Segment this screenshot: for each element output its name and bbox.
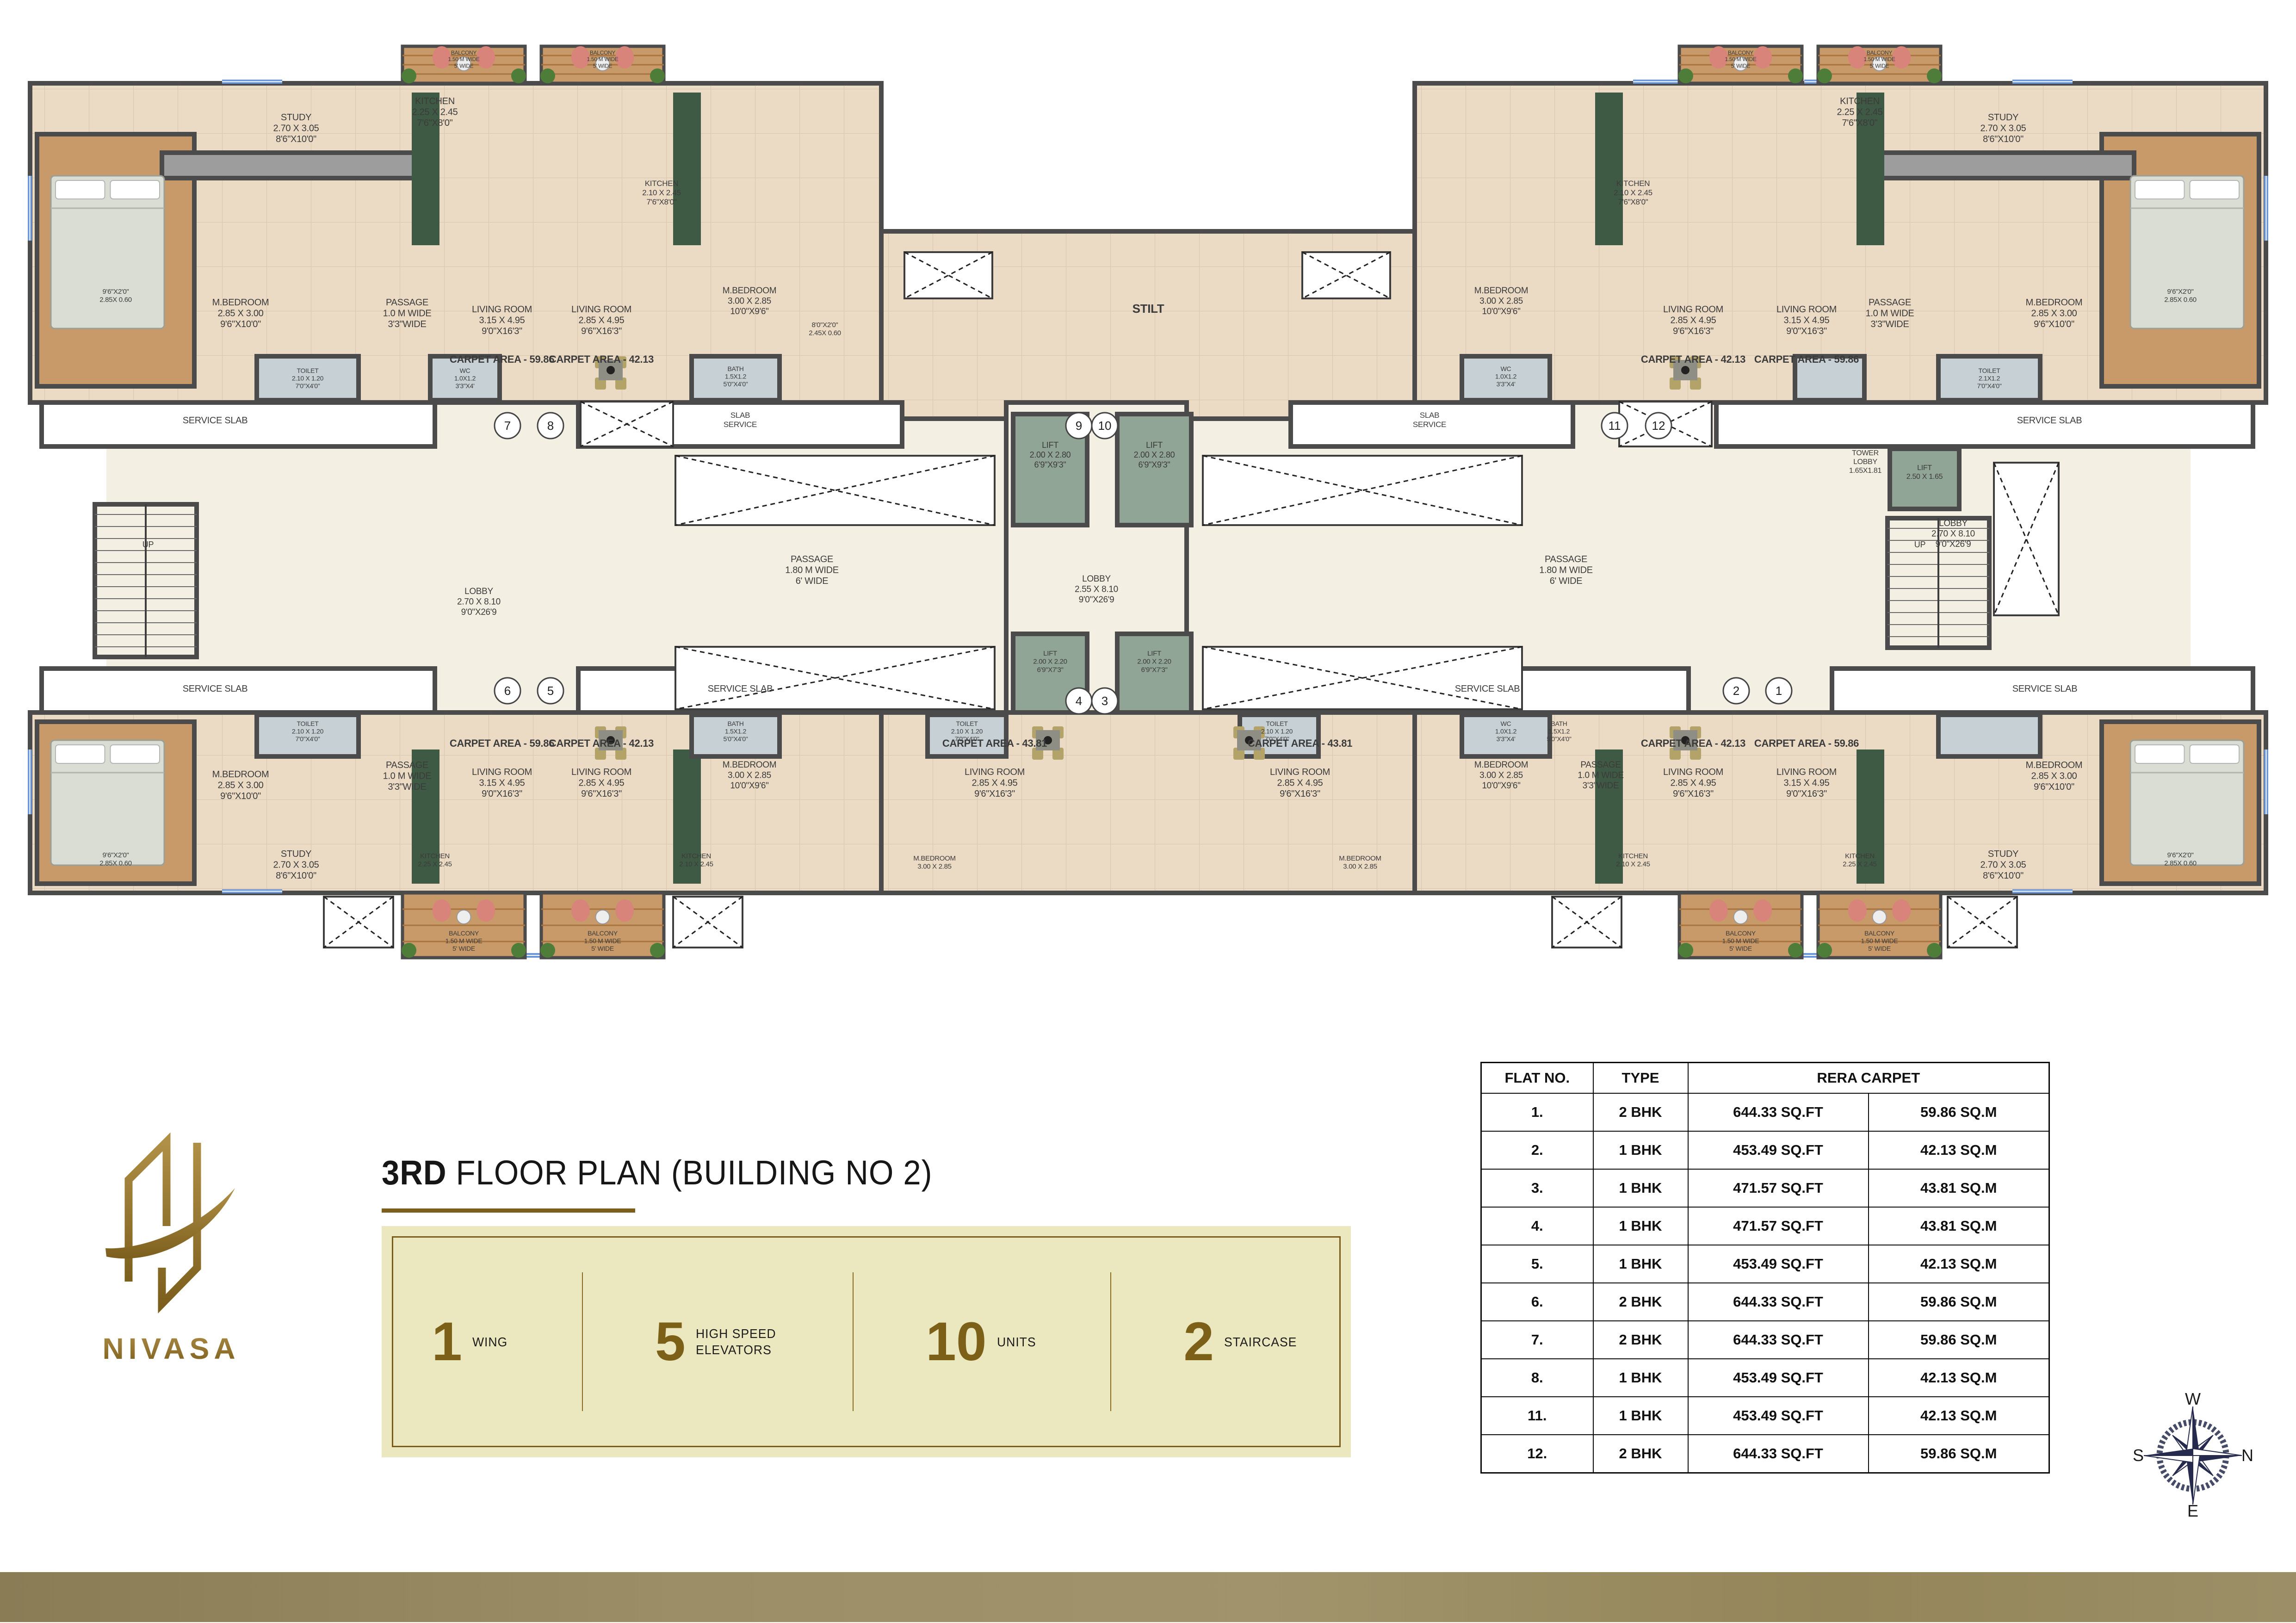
plan-label: PASSAGE1.0 M WIDE3'3"WIDE [383, 297, 432, 329]
plan-label: PASSAGE1.0 M WIDE3'3"WIDE [383, 760, 432, 792]
compass-left-label: S [2133, 1446, 2144, 1465]
cell-sqft: 453.49 SQ.FT [1688, 1397, 1869, 1435]
cell-flat: 1. [1481, 1093, 1593, 1131]
footer-gold-bar [0, 1572, 2296, 1622]
bed-pillow [111, 180, 160, 199]
stat-value: 1 [432, 1314, 462, 1369]
plan-label: M.BEDROOM3.00 X 2.8510'0"X9'6" [1474, 286, 1529, 316]
plan-label: CARPET AREA - 59.86 [1754, 353, 1859, 365]
plan-label: KITCHEN2.10 X 2.45 [1616, 852, 1650, 868]
bed-pillow [2135, 180, 2185, 199]
plan-label: M.BEDROOM2.85 X 3.009'6"X10'0" [212, 769, 269, 801]
table-row: 4.1 BHK471.57 SQ.FT43.81 SQ.M [1481, 1207, 2049, 1245]
plan-label: 9'6"X2'0"2.85X 0.60 [2164, 288, 2197, 304]
bed-pillow [2190, 180, 2240, 199]
cell-flat: 11. [1481, 1397, 1593, 1435]
plan-label: KITCHEN2.25 X 2.457'6"X8'0" [1837, 96, 1882, 128]
unit-number: 4 [1076, 694, 1082, 708]
plan-room [1938, 715, 2040, 756]
unit-number: 6 [504, 684, 511, 698]
cell-sqft: 644.33 SQ.FT [1688, 1435, 1869, 1473]
plan-label: SERVICE SLAB [2012, 684, 2078, 694]
cell-flat: 5. [1481, 1245, 1593, 1283]
bed-pillow [2190, 745, 2240, 763]
title-floor: 3RD [382, 1153, 446, 1192]
plan-label: CARPET AREA - 59.86 [450, 353, 554, 365]
cell-sqm: 59.86 SQ.M [1869, 1283, 2049, 1321]
stat-high-speed: 5HIGH SPEEDELEVATORS [650, 1314, 785, 1369]
plan-room [673, 93, 701, 245]
plan-room [1595, 93, 1623, 245]
bed-pillow [111, 745, 160, 763]
unit-number: 12 [1652, 419, 1665, 433]
unit-number: 9 [1076, 419, 1082, 433]
cell-sqm: 59.86 SQ.M [1869, 1435, 2049, 1473]
bed-pillow [2135, 745, 2185, 763]
plan-label: M.BEDROOM2.85 X 3.009'6"X10'0" [2026, 297, 2083, 329]
plan-label: 9'6"X2'0"2.85X 0.60 [99, 288, 132, 304]
cell-sqm: 43.81 SQ.M [1869, 1169, 2049, 1207]
stats-box: 1WING5HIGH SPEEDELEVATORS10UNITS2STAIRCA… [382, 1226, 1351, 1457]
plan-label: KITCHEN2.10 X 2.457'6"X8'0" [642, 179, 681, 206]
table-row: 3.1 BHK471.57 SQ.FT43.81 SQ.M [1481, 1169, 2049, 1207]
cell-sqm: 42.13 SQ.M [1869, 1131, 2049, 1169]
cell-sqm: 42.13 SQ.M [1869, 1359, 2049, 1397]
stat-value: 10 [926, 1314, 986, 1369]
cell-flat: 6. [1481, 1283, 1593, 1321]
title-underline [382, 1208, 635, 1213]
cell-sqft: 453.49 SQ.FT [1688, 1359, 1869, 1397]
plan-label: SERVICE SLAB [708, 684, 773, 694]
floor-plan: BALCONY1.50 M WIDE5' WIDEBALCONY1.50 M W… [0, 0, 2296, 995]
cell-sqm: 43.81 SQ.M [1869, 1207, 2049, 1245]
plan-label: SERVICE SLAB [183, 415, 248, 426]
cell-type: 2 BHK [1593, 1321, 1688, 1359]
header-rera-carpet: RERA CARPET [1688, 1063, 2049, 1094]
stat-value: 2 [1183, 1314, 1214, 1369]
brand-logo: NIVASA [69, 1129, 273, 1416]
plan-label: SERVICE SLAB [183, 684, 248, 694]
plan-label: TOILET2.1X1.27'0"X4'0" [1977, 367, 2001, 390]
plan-label: KITCHEN2.10 X 2.457'6"X8'0" [1614, 179, 1652, 206]
compass-top-label: W [2185, 1389, 2201, 1408]
stat-divider [853, 1272, 854, 1411]
stat-value: 5 [655, 1314, 686, 1369]
table-row: 5.1 BHK453.49 SQ.FT42.13 SQ.M [1481, 1245, 2049, 1283]
plan-label: CARPET AREA - 42.13 [1641, 353, 1745, 365]
stat-label: HIGH SPEEDELEVATORS [696, 1326, 776, 1358]
stat-divider [582, 1272, 583, 1411]
cell-flat: 12. [1481, 1435, 1593, 1473]
cell-flat: 4. [1481, 1207, 1593, 1245]
plan-label: KITCHEN2.25 X 2.45 [418, 852, 452, 868]
plan-label: SERVICE SLAB [1455, 684, 1520, 694]
header-type: TYPE [1593, 1063, 1688, 1094]
plan-label: M.BEDROOM3.00 X 2.85 [913, 855, 955, 871]
plan-label: M.BEDROOM3.00 X 2.8510'0"X9'6" [1474, 760, 1529, 791]
plan-room [1716, 403, 2253, 446]
plan-label: 9'6"X2'0"2.85X 0.60 [2164, 851, 2197, 867]
cell-type: 1 BHK [1593, 1207, 1688, 1245]
plan-label: M.BEDROOM3.00 X 2.85 [1339, 855, 1381, 871]
flat-table-header-row: FLAT NO. TYPE RERA CARPET [1481, 1063, 2049, 1094]
cell-type: 2 BHK [1593, 1283, 1688, 1321]
bed-pillow [56, 745, 105, 763]
cell-type: 2 BHK [1593, 1435, 1688, 1473]
cell-type: 1 BHK [1593, 1169, 1688, 1207]
header-flat-no: FLAT NO. [1481, 1063, 1593, 1094]
cell-sqft: 644.33 SQ.FT [1688, 1321, 1869, 1359]
plan-room [1861, 153, 2134, 178]
table-row: 1.2 BHK644.33 SQ.FT59.86 SQ.M [1481, 1093, 2049, 1131]
plan-label: CARPET AREA - 43.81 [1248, 737, 1352, 749]
stat-staircase: 2STAIRCASE [1179, 1314, 1305, 1369]
dining-centerpiece [1681, 366, 1690, 374]
plan-label: M.BEDROOM2.85 X 3.009'6"X10'0" [212, 297, 269, 329]
stats-inner: 1WING5HIGH SPEEDELEVATORS10UNITS2STAIRCA… [392, 1236, 1341, 1447]
cell-flat: 7. [1481, 1321, 1593, 1359]
cell-sqft: 471.57 SQ.FT [1688, 1169, 1869, 1207]
plan-label: UP [142, 540, 154, 549]
plan-label: 8'0"X2'0"2.45X 0.60 [809, 321, 841, 337]
cell-type: 1 BHK [1593, 1245, 1688, 1283]
table-row: 8.1 BHK453.49 SQ.FT42.13 SQ.M [1481, 1359, 2049, 1397]
cell-type: 1 BHK [1593, 1397, 1688, 1435]
table-row: 12.2 BHK644.33 SQ.FT59.86 SQ.M [1481, 1435, 2049, 1473]
plan-label: KITCHEN2.10 X 2.45 [679, 852, 713, 868]
cell-sqm: 59.86 SQ.M [1869, 1321, 2049, 1359]
service-void [1994, 463, 2059, 615]
unit-number: 7 [504, 419, 511, 433]
plan-label: TOWERLOBBY1.65X1.81 [1849, 449, 1882, 475]
plan-label: CARPET AREA - 43.81 [942, 737, 1047, 749]
stat-label: UNITS [997, 1334, 1036, 1350]
plan-label: PASSAGE1.0 M WIDE3'3"WIDE [1866, 297, 1914, 329]
cell-sqm: 42.13 SQ.M [1869, 1397, 2049, 1435]
plan-label: CARPET AREA - 42.13 [1641, 737, 1745, 749]
plan-label: M.BEDROOM2.85 X 3.009'6"X10'0" [2026, 760, 2083, 792]
plan-label: CARPET AREA - 42.13 [549, 353, 654, 365]
plan-label: STILT [1133, 302, 1164, 316]
plan-room [1117, 414, 1191, 525]
cell-sqm: 42.13 SQ.M [1869, 1245, 2049, 1283]
table-row: 11.1 BHK453.49 SQ.FT42.13 SQ.M [1481, 1397, 2049, 1435]
plan-label: CARPET AREA - 42.13 [549, 737, 654, 749]
cell-type: 1 BHK [1593, 1359, 1688, 1397]
dining-centerpiece [606, 366, 615, 374]
cell-flat: 8. [1481, 1359, 1593, 1397]
plan-label: M.BEDROOM3.00 X 2.8510'0"X9'6" [723, 286, 777, 316]
plan-label: M.BEDROOM3.00 X 2.8510'0"X9'6" [723, 760, 777, 791]
cell-sqm: 59.86 SQ.M [1869, 1093, 2049, 1131]
table-row: 6.2 BHK644.33 SQ.FT59.86 SQ.M [1481, 1283, 2049, 1321]
table-row: 7.2 BHK644.33 SQ.FT59.86 SQ.M [1481, 1321, 2049, 1359]
cell-sqft: 471.57 SQ.FT [1688, 1207, 1869, 1245]
compass: W N E S [2128, 1388, 2258, 1518]
title-rest: FLOOR PLAN (BUILDING NO 2) [446, 1153, 932, 1192]
unit-number: 8 [547, 419, 554, 433]
page-title: 3RD FLOOR PLAN (BUILDING NO 2) [382, 1153, 932, 1192]
unit-number: 3 [1102, 694, 1108, 708]
stat-label: WING [472, 1334, 507, 1350]
plan-label: SERVICE SLAB [2017, 415, 2082, 426]
plan-label: PASSAGE1.0 M WIDE3'3"WIDE [1578, 760, 1623, 791]
cell-flat: 3. [1481, 1169, 1593, 1207]
unit-number: 2 [1733, 684, 1739, 698]
plan-room [162, 153, 435, 178]
plan-label: KITCHEN2.25 X 2.45 [1843, 852, 1876, 868]
stat-wing: 1WING [427, 1314, 514, 1369]
brand-name: NIVASA [69, 1332, 273, 1366]
cell-sqft: 644.33 SQ.FT [1688, 1283, 1869, 1321]
plan-label: CARPET AREA - 59.86 [450, 737, 554, 749]
cell-sqft: 644.33 SQ.FT [1688, 1093, 1869, 1131]
stat-label: STAIRCASE [1224, 1334, 1297, 1350]
compass-rose-icon: W N E S [2128, 1388, 2258, 1518]
unit-number: 11 [1609, 419, 1621, 433]
cell-flat: 2. [1481, 1131, 1593, 1169]
cell-sqft: 453.49 SQ.FT [1688, 1245, 1869, 1283]
stat-units: 10UNITS [921, 1314, 1042, 1369]
unit-number: 10 [1098, 419, 1112, 433]
stat-divider [1110, 1272, 1111, 1411]
compass-right-label: N [2241, 1446, 2253, 1465]
compass-bottom-label: E [2187, 1501, 2198, 1518]
unit-number: 1 [1776, 684, 1782, 698]
plan-label: UP [1914, 540, 1926, 549]
nivasa-building-icon [102, 1129, 241, 1328]
table-row: 2.1 BHK453.49 SQ.FT42.13 SQ.M [1481, 1131, 2049, 1169]
cell-type: 2 BHK [1593, 1093, 1688, 1131]
plan-label: 9'6"X2'0"2.85X 0.60 [99, 851, 132, 867]
unit-number: 5 [547, 684, 554, 698]
cell-type: 1 BHK [1593, 1131, 1688, 1169]
plan-label: KITCHEN2.25 X 2.457'6"X8'0" [412, 96, 458, 128]
flat-table: FLAT NO. TYPE RERA CARPET 1.2 BHK644.33 … [1480, 1062, 2050, 1474]
plan-label: CARPET AREA - 59.86 [1754, 737, 1859, 749]
cell-sqft: 453.49 SQ.FT [1688, 1131, 1869, 1169]
bed-pillow [56, 180, 105, 199]
